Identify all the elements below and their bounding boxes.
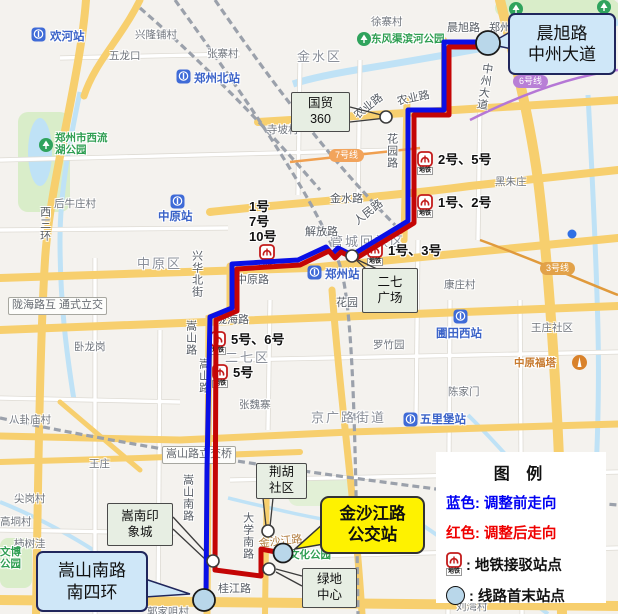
callout-text: 晨旭路 <box>510 23 614 44</box>
callout-text: 中心 <box>303 588 356 604</box>
legend-title: 图 例 <box>446 460 596 484</box>
callout-text: 360 <box>292 112 349 128</box>
callout-text: 中州大道 <box>510 44 614 65</box>
legend-row: : 线路首末站点 <box>446 585 606 606</box>
callout-lvdi-center: 绿地中心 <box>302 568 357 608</box>
legend-text: 红色: 调整后走向 <box>446 522 556 543</box>
callout-text: 绿地 <box>303 572 356 588</box>
callout-chenxu-zhongzhou: 晨旭路中州大道 <box>508 13 616 75</box>
legend-text: : 线路首末站点 <box>469 585 565 606</box>
legend-row: 红色: 调整后走向 <box>446 522 606 543</box>
legend: 图 例 蓝色: 调整前走向红色: 调整后走向地铁: 地铁接驳站点: 线路首末站点 <box>436 452 606 603</box>
callout-songnan-mall: 嵩南印象城 <box>107 503 173 546</box>
metro-interchange-icon: 地铁 <box>446 552 462 576</box>
callout-text: 嵩山南路 <box>38 560 146 581</box>
callout-jinghu-shequ: 荆胡社区 <box>256 463 307 499</box>
transit-map[interactable]: 金水区中原区二七区管城回族区京广路街道晨旭路郑州农业路农业路花园路金水路人民路解… <box>0 0 618 614</box>
callout-text: 金沙江路 <box>322 504 423 525</box>
callout-text: 荆胡 <box>257 465 306 481</box>
terminal-legend-swatch <box>446 586 465 605</box>
callout-text: 二七 <box>363 275 417 291</box>
callout-text: 国贸 <box>292 96 349 112</box>
callout-text: 社区 <box>257 481 306 497</box>
callout-text: 嵩南印 <box>108 509 172 525</box>
legend-text: : 地铁接驳站点 <box>466 554 562 575</box>
callout-text: 南四环 <box>38 582 146 603</box>
legend-text: 蓝色: 调整前走向 <box>446 492 556 513</box>
callout-guomao-360: 国贸360 <box>291 92 350 132</box>
metro-tag: 地铁 <box>446 568 462 576</box>
callout-text: 广场 <box>363 291 417 307</box>
callout-songshan-nansihuan: 嵩山南路南四环 <box>36 551 148 612</box>
callout-jinshajiang-stop: 金沙江路公交站 <box>320 496 425 554</box>
legend-row: 地铁: 地铁接驳站点 <box>446 552 606 576</box>
callout-text: 公交站 <box>322 525 423 546</box>
legend-row: 蓝色: 调整前走向 <box>446 492 606 513</box>
callout-text: 象城 <box>108 525 172 541</box>
callout-erqi-square: 二七广场 <box>362 268 418 313</box>
